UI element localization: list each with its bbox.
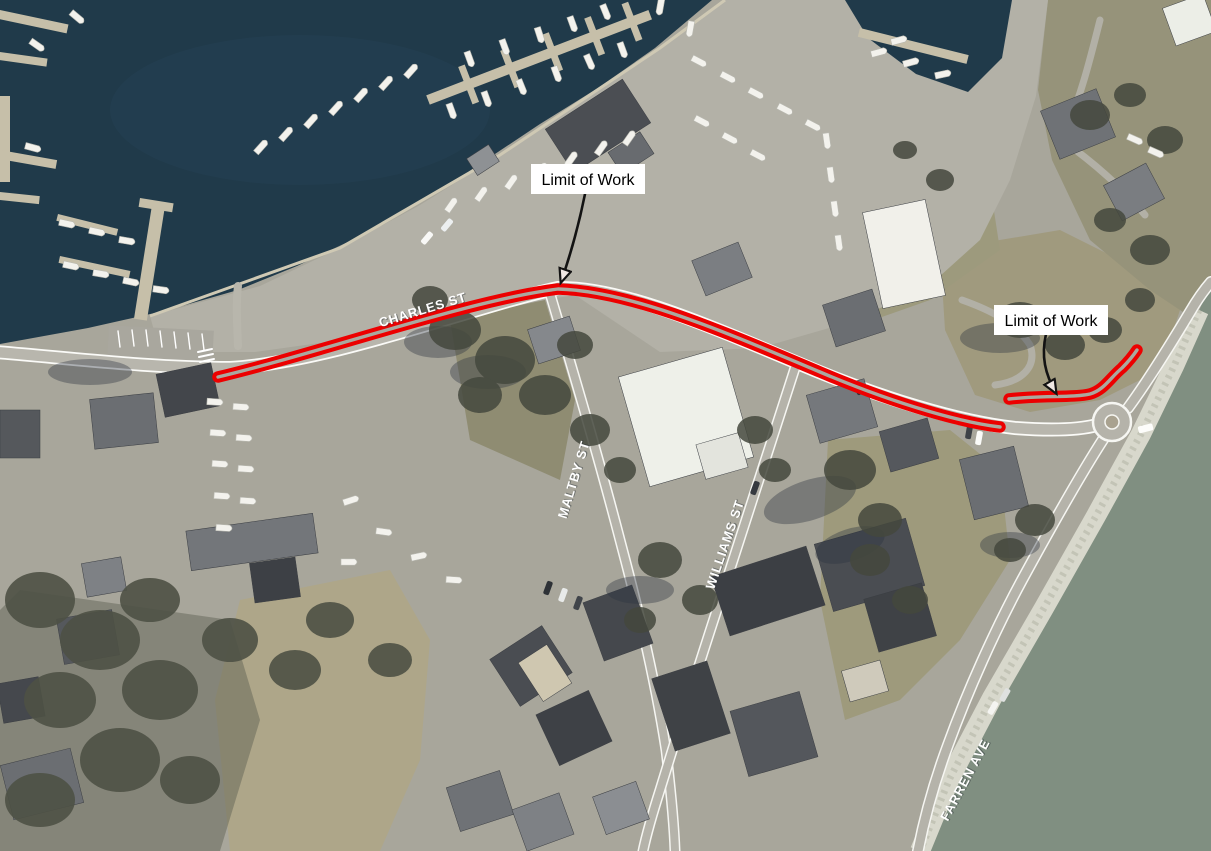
limit-west-label-text: Limit of Work [541,172,635,189]
aerial-map-canvas: Limit of Work Limit of Work CHARLES ST C… [0,0,1211,851]
limit-east-label-text: Limit of Work [1004,313,1098,330]
harbor-water-sheen [110,35,490,185]
aerial-map: Limit of Work Limit of Work CHARLES ST C… [0,0,1211,851]
limit-of-work-label-east: Limit of Work [994,305,1108,335]
limit-of-work-label-west: Limit of Work [531,164,645,194]
house [0,410,40,458]
marina-driveway [237,286,238,346]
roundabout [1093,403,1131,441]
house [90,393,159,449]
